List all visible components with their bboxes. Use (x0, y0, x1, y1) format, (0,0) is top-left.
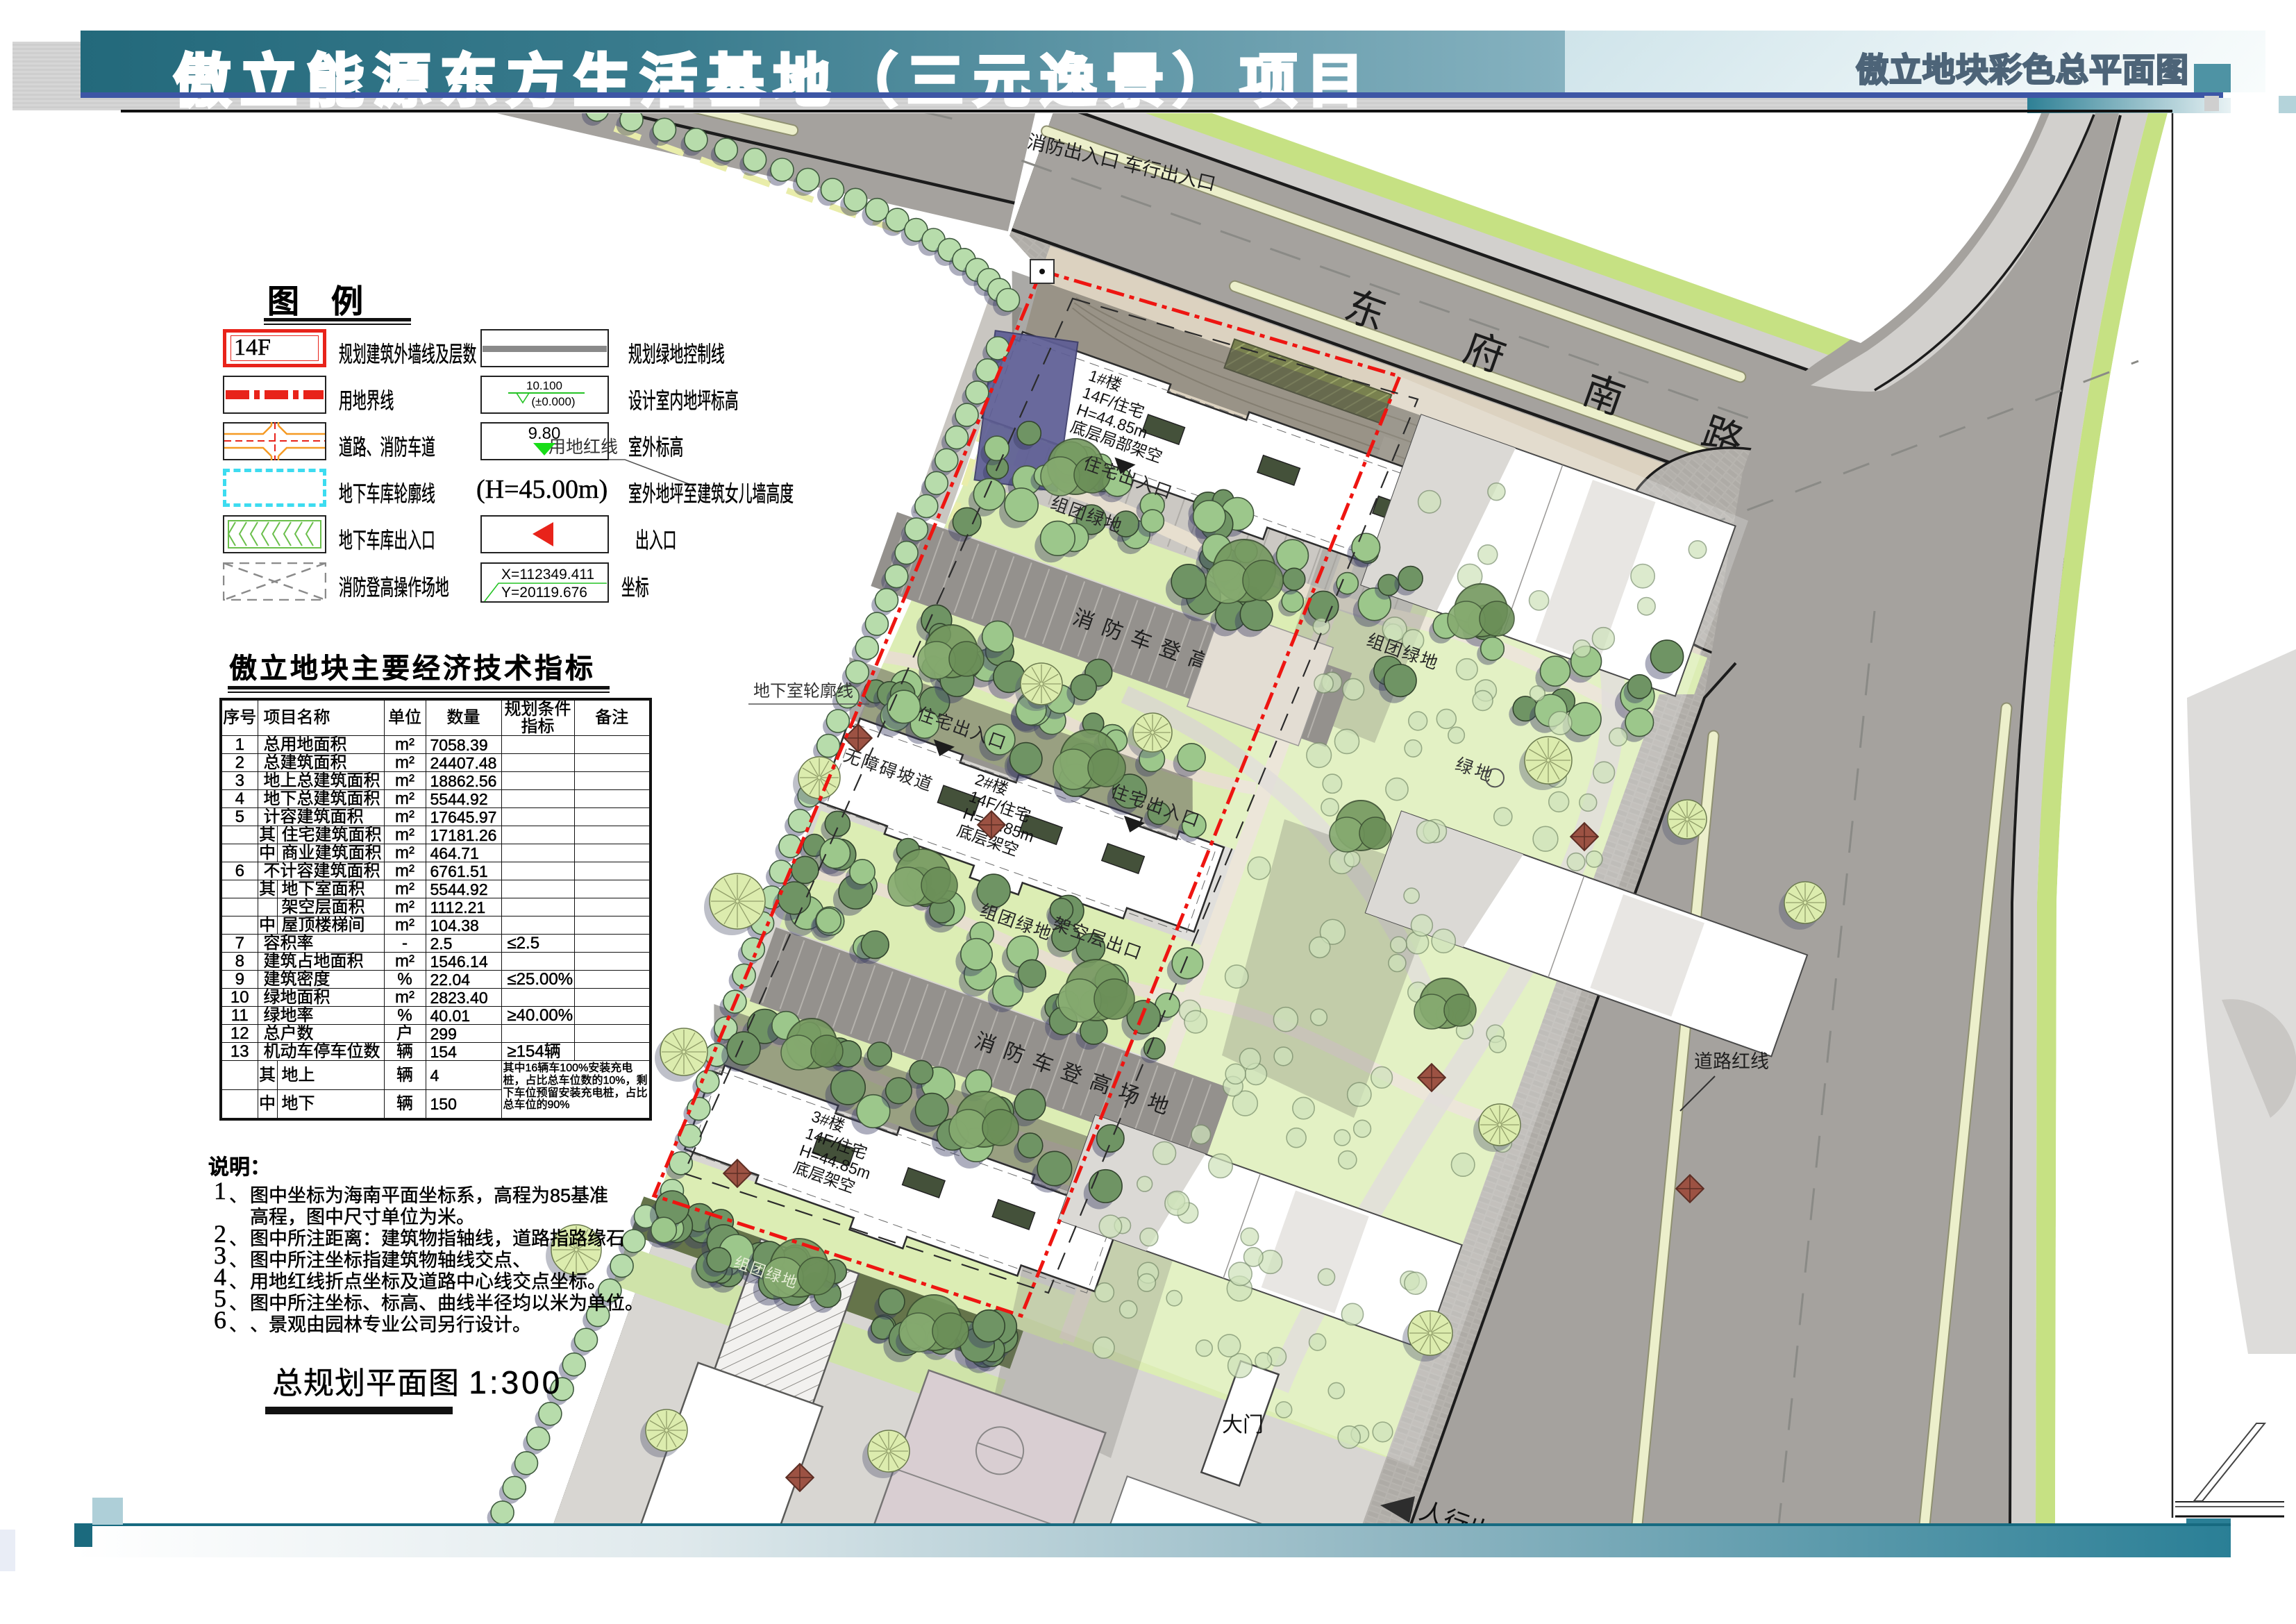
svg-text:Y=20119.676: Y=20119.676 (501, 585, 587, 601)
svg-text:X=112349.411: X=112349.411 (501, 567, 594, 583)
svg-text:道路红线: 道路红线 (1694, 1051, 1769, 1072)
svg-text:(±0.000): (±0.000) (531, 395, 575, 408)
svg-text:地下室轮廓线: 地下室轮廓线 (753, 682, 853, 701)
svg-text:大门: 大门 (1222, 1414, 1264, 1437)
svg-text:9.80: 9.80 (528, 424, 561, 443)
svg-text:10.100: 10.100 (526, 379, 562, 392)
